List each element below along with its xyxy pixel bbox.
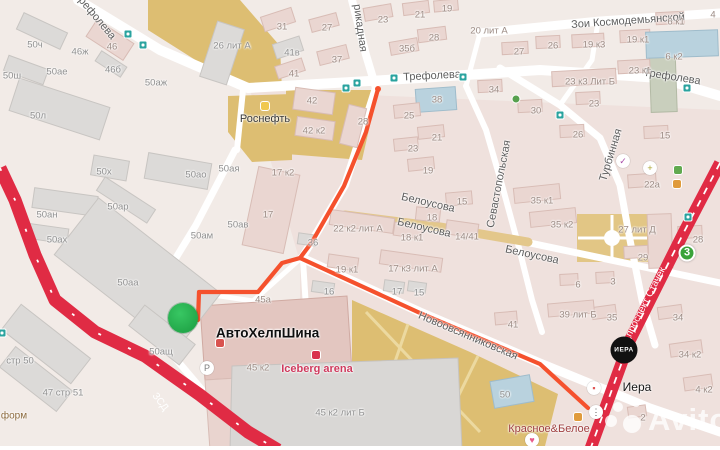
avito-watermark-dot <box>605 415 617 427</box>
bottom-margin <box>0 446 720 450</box>
building <box>434 0 459 12</box>
building <box>644 125 669 138</box>
map-base-layer <box>0 0 720 450</box>
building <box>478 79 503 92</box>
building <box>624 245 649 258</box>
building <box>572 33 605 48</box>
building <box>518 99 543 112</box>
avito-watermark-dot <box>623 415 641 433</box>
building <box>417 125 444 140</box>
building <box>495 311 518 325</box>
building <box>646 30 719 58</box>
building <box>536 35 561 48</box>
iera-logo-badge[interactable]: ИЕРА <box>611 337 638 364</box>
avito-watermark-dot <box>613 402 623 412</box>
map-canvas[interactable]: ТрефолеваТрефолеваТрефолеваЗои Космодемь… <box>0 0 720 450</box>
avito-watermark-text: Avito <box>648 402 720 438</box>
building <box>417 26 446 42</box>
building <box>618 59 651 74</box>
building <box>407 157 434 172</box>
building <box>383 280 404 294</box>
route-start-point <box>375 86 381 92</box>
building <box>311 281 334 295</box>
building <box>415 87 457 113</box>
building <box>415 207 440 222</box>
fountain <box>604 230 620 246</box>
avito-watermark-dot <box>632 399 640 407</box>
building <box>393 137 418 151</box>
building <box>502 41 529 54</box>
building <box>576 91 601 104</box>
building <box>596 272 615 284</box>
building <box>560 274 579 286</box>
building <box>628 173 657 188</box>
building <box>402 0 429 15</box>
building <box>656 11 685 24</box>
building <box>552 68 617 86</box>
destination-label: АвтоХелпШина <box>216 326 319 341</box>
building <box>560 124 585 137</box>
building <box>407 281 426 293</box>
destination-marker[interactable] <box>168 303 198 333</box>
transit-route-badge[interactable]: 3 <box>679 245 696 262</box>
building <box>393 103 420 119</box>
building <box>445 191 472 206</box>
